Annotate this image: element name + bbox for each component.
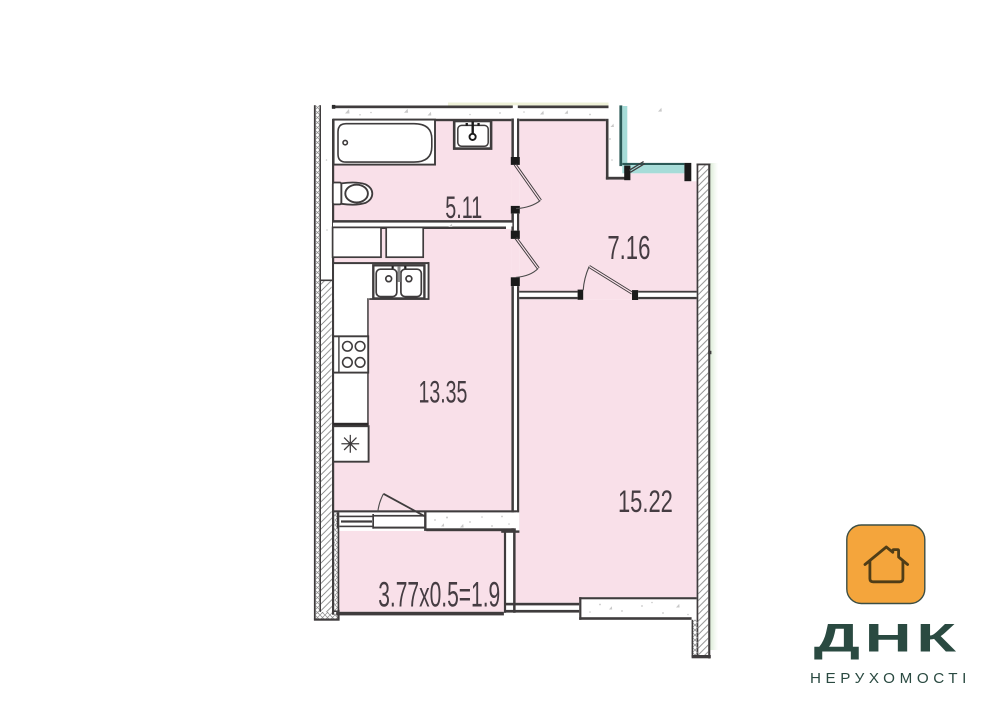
svg-text:7.16: 7.16	[607, 230, 650, 266]
svg-text:ДНК: ДНК	[814, 616, 961, 661]
svg-text:15.22: 15.22	[618, 483, 673, 519]
svg-text:3.77x0.5=1.9: 3.77x0.5=1.9	[378, 576, 500, 615]
svg-text:5.11: 5.11	[445, 189, 482, 225]
svg-text:НЕРУХОМОСТІ: НЕРУХОМОСТІ	[810, 670, 971, 687]
svg-text:13.35: 13.35	[418, 374, 467, 410]
